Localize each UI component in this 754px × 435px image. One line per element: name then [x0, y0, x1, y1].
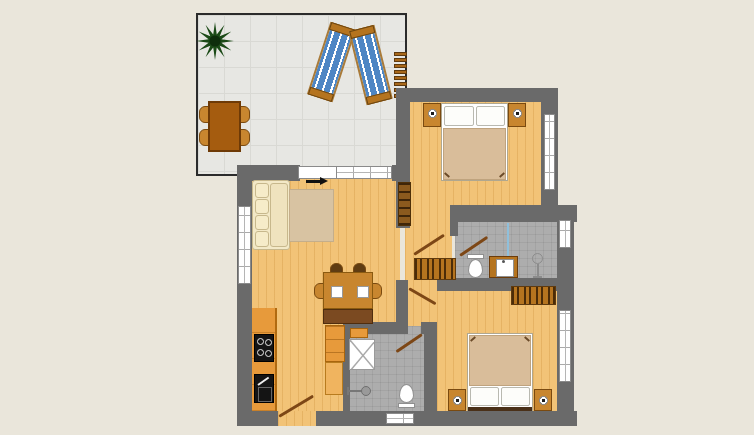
shower-shelf — [350, 328, 368, 338]
nightstand — [423, 103, 441, 127]
glass-partition — [507, 223, 509, 256]
wall — [450, 222, 458, 236]
pillow — [470, 387, 499, 406]
rug — [289, 189, 334, 242]
lamp-icon — [428, 109, 437, 118]
potted-plant-icon — [195, 21, 235, 61]
outdoor-chair — [240, 106, 250, 123]
wall — [396, 280, 408, 292]
kitchen-cabinet-low — [325, 362, 343, 395]
living-top-window — [336, 166, 392, 179]
bookshelf — [398, 182, 411, 226]
toilet-bottom — [398, 384, 415, 409]
shower-fixture-top — [530, 253, 544, 279]
nightstand — [534, 389, 552, 411]
bedroom-bottom-window — [559, 310, 571, 382]
pillow — [476, 106, 505, 126]
plate — [331, 286, 343, 298]
outdoor-chair — [240, 129, 250, 146]
entrance-arrow-head — [320, 177, 328, 185]
hallway-wardrobe — [414, 258, 456, 280]
living-left-window — [238, 206, 251, 284]
cooktop — [254, 334, 274, 362]
nightstand — [508, 103, 526, 127]
bedroom-top-window — [544, 114, 555, 190]
pillow — [501, 387, 530, 406]
bathroom-bottom-window — [386, 413, 414, 424]
lamp-icon — [453, 396, 462, 405]
shower-head-bottom — [347, 385, 373, 397]
dining-chair — [372, 283, 382, 299]
pillow — [444, 106, 474, 126]
entrance-door — [298, 166, 338, 179]
blanket — [443, 128, 506, 180]
vanity-sink — [489, 256, 518, 278]
kitchen-cabinet-tower — [325, 325, 345, 362]
wall — [237, 165, 252, 426]
outdoor-table — [208, 101, 241, 152]
floor-plan — [0, 0, 754, 435]
nightstand — [448, 389, 466, 411]
double-bed-top — [441, 103, 508, 181]
dining-table — [323, 272, 373, 309]
lamp-icon — [513, 109, 522, 118]
shower-tray — [349, 339, 375, 370]
wall — [424, 332, 437, 413]
entrance-arrow-icon — [306, 180, 320, 183]
double-bed-bottom — [467, 333, 533, 411]
toilet-top — [467, 254, 484, 279]
wall — [396, 88, 558, 102]
bedroom-bottom-wardrobe — [511, 286, 556, 305]
kitchen-sink — [254, 374, 274, 403]
plate — [357, 286, 369, 298]
lamp-icon — [539, 396, 548, 405]
blanket — [469, 335, 531, 386]
bathroom-top-window — [559, 220, 571, 248]
corner-sofa — [252, 180, 290, 250]
bench — [323, 309, 373, 324]
